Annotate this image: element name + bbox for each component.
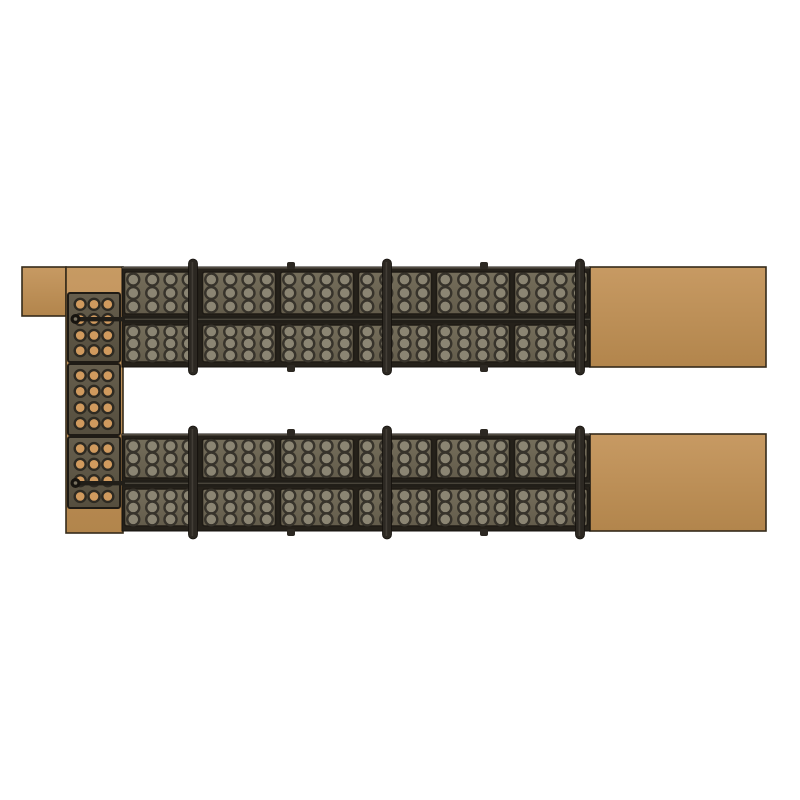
rivet-hole bbox=[146, 300, 158, 312]
rivet-hole bbox=[302, 300, 314, 312]
rivet-hole bbox=[398, 513, 410, 525]
rivet-hole bbox=[320, 502, 332, 514]
rivet-hole bbox=[75, 370, 86, 381]
right-plank-top bbox=[590, 267, 766, 367]
rivet-hole bbox=[224, 513, 236, 525]
rivet-hole bbox=[283, 338, 295, 350]
rivet-hole bbox=[205, 440, 217, 452]
rivet-hole bbox=[417, 274, 429, 286]
rivet-hole bbox=[146, 274, 158, 286]
rivet-hole bbox=[554, 465, 566, 477]
rivet-hole bbox=[398, 465, 410, 477]
connector-nub bbox=[287, 262, 295, 269]
rivet-hole bbox=[283, 453, 295, 465]
rivet-hole bbox=[242, 453, 254, 465]
rivet-hole bbox=[398, 349, 410, 361]
rivet-hole bbox=[398, 502, 410, 514]
rivet-hole bbox=[164, 465, 176, 477]
rivet-hole bbox=[458, 300, 470, 312]
rivet-hole bbox=[361, 440, 373, 452]
rivet-hole bbox=[75, 345, 86, 356]
rivet-hole bbox=[476, 287, 488, 299]
rivet-hole bbox=[75, 443, 86, 454]
rivet-hole bbox=[320, 326, 332, 338]
tie-rod-pin-center bbox=[74, 317, 78, 321]
rivet-hole bbox=[458, 287, 470, 299]
rivet-hole bbox=[89, 299, 100, 310]
rivet-hole bbox=[476, 465, 488, 477]
rivet-hole bbox=[102, 443, 113, 454]
rivet-hole bbox=[417, 338, 429, 350]
rivet-hole bbox=[205, 513, 217, 525]
rivet-hole bbox=[517, 300, 529, 312]
rivet-hole bbox=[164, 287, 176, 299]
rivet-hole bbox=[339, 453, 351, 465]
rivet-hole bbox=[398, 490, 410, 502]
rivet-hole bbox=[224, 287, 236, 299]
rivet-hole bbox=[517, 338, 529, 350]
rivet-hole bbox=[495, 502, 507, 514]
rivet-hole bbox=[536, 440, 548, 452]
rivet-hole bbox=[146, 490, 158, 502]
rivet-hole bbox=[89, 459, 100, 470]
rivet-hole bbox=[476, 349, 488, 361]
rivet-hole bbox=[302, 274, 314, 286]
rivet-hole bbox=[205, 300, 217, 312]
rivet-hole bbox=[224, 490, 236, 502]
rivet-hole bbox=[205, 349, 217, 361]
rivet-hole bbox=[495, 274, 507, 286]
rivet-hole bbox=[517, 326, 529, 338]
rivet-hole bbox=[205, 287, 217, 299]
rivet-hole bbox=[439, 338, 451, 350]
rivet-hole bbox=[102, 345, 113, 356]
rivet-hole bbox=[476, 326, 488, 338]
rivet-hole bbox=[302, 502, 314, 514]
rivet-hole bbox=[261, 274, 273, 286]
rivet-hole bbox=[205, 453, 217, 465]
rivet-hole bbox=[339, 274, 351, 286]
rivet-hole bbox=[127, 453, 139, 465]
rivet-hole bbox=[361, 465, 373, 477]
rivet-hole bbox=[361, 513, 373, 525]
rivet-hole bbox=[458, 274, 470, 286]
rivet-hole bbox=[339, 465, 351, 477]
rivet-hole bbox=[476, 274, 488, 286]
rivet-hole bbox=[261, 513, 273, 525]
rivet-hole bbox=[398, 453, 410, 465]
rivet-hole bbox=[261, 349, 273, 361]
rivet-hole bbox=[439, 274, 451, 286]
rivet-hole bbox=[261, 465, 273, 477]
rivet-hole bbox=[495, 465, 507, 477]
rivet-hole bbox=[283, 513, 295, 525]
rivet-hole bbox=[554, 287, 566, 299]
rivet-hole bbox=[164, 502, 176, 514]
rivet-hole bbox=[339, 326, 351, 338]
rivet-hole bbox=[302, 465, 314, 477]
rivet-hole bbox=[205, 274, 217, 286]
rivet-hole bbox=[517, 513, 529, 525]
rivet-hole bbox=[102, 418, 113, 429]
rivet-hole bbox=[458, 465, 470, 477]
rivet-hole bbox=[127, 326, 139, 338]
connector-post-highlight bbox=[579, 429, 581, 536]
rivet-hole bbox=[476, 338, 488, 350]
rivet-hole bbox=[476, 453, 488, 465]
rivet-hole bbox=[242, 513, 254, 525]
rivet-hole bbox=[224, 440, 236, 452]
rivet-hole bbox=[476, 300, 488, 312]
rivet-hole bbox=[320, 338, 332, 350]
rivet-hole bbox=[458, 513, 470, 525]
rivet-hole bbox=[146, 465, 158, 477]
rivet-hole bbox=[89, 402, 100, 413]
rivet-hole bbox=[417, 502, 429, 514]
rivet-hole bbox=[146, 287, 158, 299]
rivet-hole bbox=[476, 440, 488, 452]
rivet-hole bbox=[302, 513, 314, 525]
rivet-hole bbox=[536, 300, 548, 312]
rivet-hole bbox=[398, 338, 410, 350]
rivet-hole bbox=[495, 513, 507, 525]
rivet-hole bbox=[127, 440, 139, 452]
rivet-hole bbox=[89, 418, 100, 429]
rivet-hole bbox=[127, 274, 139, 286]
rivet-hole bbox=[536, 287, 548, 299]
rivet-hole bbox=[476, 490, 488, 502]
rivet-hole bbox=[89, 345, 100, 356]
rivet-hole bbox=[417, 287, 429, 299]
rivet-hole bbox=[536, 490, 548, 502]
rivet-hole bbox=[398, 287, 410, 299]
rivet-hole bbox=[127, 465, 139, 477]
rivet-hole bbox=[283, 349, 295, 361]
rivet-hole bbox=[146, 349, 158, 361]
rivet-hole bbox=[339, 338, 351, 350]
rivet-hole bbox=[439, 440, 451, 452]
rivet-hole bbox=[75, 299, 86, 310]
rivet-hole bbox=[224, 338, 236, 350]
rivet-hole bbox=[261, 287, 273, 299]
rivet-hole bbox=[164, 338, 176, 350]
rivet-hole bbox=[242, 338, 254, 350]
rivet-hole bbox=[361, 300, 373, 312]
rivet-hole bbox=[495, 453, 507, 465]
rivet-hole bbox=[302, 287, 314, 299]
rivet-hole bbox=[554, 453, 566, 465]
rivet-hole bbox=[439, 349, 451, 361]
connector-nub bbox=[480, 429, 488, 436]
rivet-hole bbox=[224, 300, 236, 312]
rivet-hole bbox=[261, 453, 273, 465]
rivet-hole bbox=[361, 338, 373, 350]
rivet-hole bbox=[417, 465, 429, 477]
rivet-hole bbox=[361, 274, 373, 286]
rivet-hole bbox=[517, 349, 529, 361]
rivet-hole bbox=[517, 490, 529, 502]
connector-nub bbox=[480, 262, 488, 269]
connector-nub bbox=[287, 365, 295, 372]
rivet-hole bbox=[320, 300, 332, 312]
rivet-hole bbox=[495, 490, 507, 502]
rivet-hole bbox=[536, 502, 548, 514]
connector-post-highlight bbox=[192, 429, 194, 536]
rivet-hole bbox=[242, 502, 254, 514]
rivet-hole bbox=[361, 349, 373, 361]
rivet-hole bbox=[283, 465, 295, 477]
rivet-hole bbox=[205, 326, 217, 338]
rivet-hole bbox=[224, 465, 236, 477]
rivet-hole bbox=[439, 490, 451, 502]
rivet-hole bbox=[339, 490, 351, 502]
rivet-hole bbox=[320, 287, 332, 299]
rivet-hole bbox=[242, 349, 254, 361]
rivet-hole bbox=[554, 440, 566, 452]
rivet-hole bbox=[302, 490, 314, 502]
rivet-hole bbox=[127, 287, 139, 299]
rivet-hole bbox=[398, 300, 410, 312]
rivet-hole bbox=[495, 326, 507, 338]
rivet-hole bbox=[261, 490, 273, 502]
rivet-hole bbox=[146, 338, 158, 350]
rivet-hole bbox=[339, 513, 351, 525]
rivet-hole bbox=[439, 326, 451, 338]
rivet-hole bbox=[242, 465, 254, 477]
rivet-hole bbox=[439, 287, 451, 299]
rivet-hole bbox=[283, 490, 295, 502]
rivet-hole bbox=[102, 402, 113, 413]
connector-nub bbox=[480, 365, 488, 372]
rivet-hole bbox=[495, 287, 507, 299]
rivet-hole bbox=[495, 349, 507, 361]
rivet-hole bbox=[102, 330, 113, 341]
rivet-hole bbox=[554, 502, 566, 514]
rivet-hole bbox=[127, 513, 139, 525]
rivet-hole bbox=[242, 440, 254, 452]
rivet-hole bbox=[495, 300, 507, 312]
rivet-hole bbox=[517, 453, 529, 465]
tie-rod-pin-center bbox=[74, 481, 78, 485]
rivet-hole bbox=[164, 513, 176, 525]
rivet-hole bbox=[261, 326, 273, 338]
rivet-hole bbox=[75, 330, 86, 341]
rivet-hole bbox=[224, 453, 236, 465]
rivet-hole bbox=[261, 440, 273, 452]
rivet-hole bbox=[320, 274, 332, 286]
rivet-hole bbox=[361, 326, 373, 338]
rivet-hole bbox=[205, 465, 217, 477]
rivet-hole bbox=[554, 300, 566, 312]
rivet-hole bbox=[75, 459, 86, 470]
rivet-hole bbox=[320, 440, 332, 452]
rivet-hole bbox=[439, 300, 451, 312]
rivet-hole bbox=[102, 491, 113, 502]
rivet-hole bbox=[554, 274, 566, 286]
rivet-hole bbox=[554, 349, 566, 361]
rivet-hole bbox=[127, 349, 139, 361]
rivet-hole bbox=[261, 502, 273, 514]
rivet-hole bbox=[536, 453, 548, 465]
rivet-hole bbox=[242, 274, 254, 286]
rivet-hole bbox=[75, 386, 86, 397]
rivet-hole bbox=[146, 513, 158, 525]
rivet-hole bbox=[554, 513, 566, 525]
rivet-hole bbox=[89, 330, 100, 341]
rivet-hole bbox=[146, 326, 158, 338]
rivet-hole bbox=[495, 440, 507, 452]
rivet-hole bbox=[102, 370, 113, 381]
rivet-hole bbox=[554, 326, 566, 338]
rivet-hole bbox=[476, 513, 488, 525]
rivet-hole bbox=[302, 440, 314, 452]
rivet-hole bbox=[242, 300, 254, 312]
rivet-hole bbox=[361, 502, 373, 514]
rivet-hole bbox=[417, 513, 429, 525]
rivet-hole bbox=[517, 274, 529, 286]
rivet-hole bbox=[283, 287, 295, 299]
rivet-hole bbox=[417, 349, 429, 361]
rivet-hole bbox=[283, 440, 295, 452]
rivet-hole bbox=[458, 502, 470, 514]
rivet-hole bbox=[439, 453, 451, 465]
rivet-hole bbox=[242, 287, 254, 299]
rivet-hole bbox=[320, 465, 332, 477]
rivet-hole bbox=[164, 490, 176, 502]
render-stage bbox=[0, 0, 800, 800]
rivet-hole bbox=[536, 338, 548, 350]
rivet-hole bbox=[339, 440, 351, 452]
rivet-hole bbox=[458, 349, 470, 361]
rivet-hole bbox=[417, 440, 429, 452]
rivet-hole bbox=[127, 502, 139, 514]
rivet-hole bbox=[439, 465, 451, 477]
rivet-hole bbox=[458, 453, 470, 465]
connector-nub bbox=[480, 529, 488, 536]
rivet-hole bbox=[102, 459, 113, 470]
rivet-hole bbox=[89, 443, 100, 454]
rivet-hole bbox=[164, 440, 176, 452]
rivet-hole bbox=[164, 453, 176, 465]
rivet-hole bbox=[417, 326, 429, 338]
rivet-hole bbox=[495, 338, 507, 350]
rivet-hole bbox=[398, 274, 410, 286]
rivet-hole bbox=[398, 440, 410, 452]
rivet-hole bbox=[224, 502, 236, 514]
rivet-hole bbox=[75, 418, 86, 429]
rivet-hole bbox=[127, 338, 139, 350]
rivet-hole bbox=[536, 326, 548, 338]
connector-nub bbox=[287, 429, 295, 436]
rivet-hole bbox=[146, 440, 158, 452]
rivet-hole bbox=[536, 465, 548, 477]
rivet-hole bbox=[224, 349, 236, 361]
rivet-hole bbox=[127, 300, 139, 312]
rivet-hole bbox=[361, 287, 373, 299]
rivet-hole bbox=[476, 502, 488, 514]
rivet-hole bbox=[339, 287, 351, 299]
rivet-hole bbox=[164, 274, 176, 286]
rivet-hole bbox=[458, 338, 470, 350]
rivet-hole bbox=[554, 338, 566, 350]
rivet-hole bbox=[302, 326, 314, 338]
connector-post-highlight bbox=[386, 262, 388, 372]
rivet-hole bbox=[320, 490, 332, 502]
rivet-hole bbox=[339, 502, 351, 514]
rivet-hole bbox=[261, 338, 273, 350]
rivet-hole bbox=[320, 513, 332, 525]
rivet-hole bbox=[517, 502, 529, 514]
rivet-hole bbox=[517, 440, 529, 452]
deck-structure-render bbox=[0, 0, 800, 800]
rivet-hole bbox=[339, 349, 351, 361]
rivet-hole bbox=[89, 370, 100, 381]
rivet-hole bbox=[89, 386, 100, 397]
rivet-hole bbox=[302, 338, 314, 350]
rivet-hole bbox=[164, 349, 176, 361]
rivet-hole bbox=[458, 490, 470, 502]
rivet-hole bbox=[242, 326, 254, 338]
rivet-hole bbox=[517, 465, 529, 477]
rivet-hole bbox=[417, 490, 429, 502]
rivet-hole bbox=[75, 491, 86, 502]
rivet-hole bbox=[417, 300, 429, 312]
rivet-hole bbox=[536, 513, 548, 525]
rivet-hole bbox=[536, 349, 548, 361]
rivet-hole bbox=[439, 502, 451, 514]
rivet-hole bbox=[205, 338, 217, 350]
rivet-hole bbox=[89, 491, 100, 502]
connector-post-highlight bbox=[579, 262, 581, 372]
rivet-hole bbox=[339, 300, 351, 312]
rivet-hole bbox=[361, 490, 373, 502]
rivet-hole bbox=[320, 349, 332, 361]
rivet-hole bbox=[417, 453, 429, 465]
rivet-hole bbox=[283, 274, 295, 286]
rivet-hole bbox=[302, 453, 314, 465]
rivet-hole bbox=[146, 453, 158, 465]
rivet-hole bbox=[164, 300, 176, 312]
rivet-hole bbox=[361, 453, 373, 465]
rivet-hole bbox=[398, 326, 410, 338]
rivet-hole bbox=[536, 274, 548, 286]
rivet-hole bbox=[102, 386, 113, 397]
rivet-hole bbox=[261, 300, 273, 312]
rivet-hole bbox=[320, 453, 332, 465]
rivet-hole bbox=[458, 326, 470, 338]
rivet-hole bbox=[102, 299, 113, 310]
rivet-hole bbox=[242, 490, 254, 502]
rivet-hole bbox=[146, 502, 158, 514]
rivet-hole bbox=[283, 300, 295, 312]
rivet-hole bbox=[164, 326, 176, 338]
right-plank-bottom bbox=[590, 434, 766, 531]
rivet-hole bbox=[439, 513, 451, 525]
connector-post-highlight bbox=[192, 262, 194, 372]
rivet-hole bbox=[302, 349, 314, 361]
rivet-hole bbox=[554, 490, 566, 502]
rivet-hole bbox=[283, 326, 295, 338]
rivet-hole bbox=[75, 402, 86, 413]
rivet-hole bbox=[205, 490, 217, 502]
rivet-hole bbox=[127, 490, 139, 502]
rivet-hole bbox=[283, 502, 295, 514]
connector-post-highlight bbox=[386, 429, 388, 536]
rivet-hole bbox=[458, 440, 470, 452]
corner-block bbox=[22, 267, 66, 316]
rivet-hole bbox=[205, 502, 217, 514]
rivet-hole bbox=[224, 326, 236, 338]
